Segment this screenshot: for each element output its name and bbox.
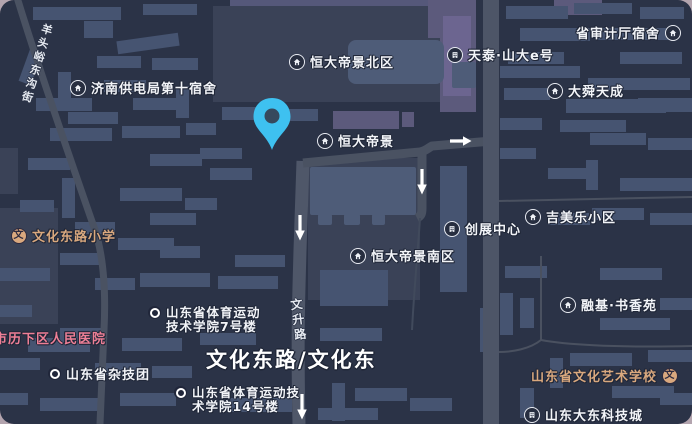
poi-sports-college-14[interactable]: 山东省体育运动技 术学院14号楼 (174, 386, 300, 414)
poi-label: 山东省文化艺术学校 (531, 366, 657, 385)
poi-label: 融基·书香苑 (581, 295, 657, 314)
poi-zaji-troupe[interactable]: 山东省杂技团 (48, 364, 150, 383)
house-icon (665, 25, 681, 41)
building-icon (524, 407, 540, 423)
poi-wenhua-primary[interactable]: 文 文化东路小学 (11, 226, 116, 245)
poi-dashun[interactable]: 大舜天成 (547, 81, 624, 100)
poi-label: 恒大帝景北区 (310, 52, 394, 71)
house-icon (317, 133, 333, 149)
house-icon (70, 80, 86, 96)
building-icon (447, 47, 463, 63)
building-icon (444, 221, 460, 237)
traffic-arrow-right (450, 136, 472, 146)
dot-icon (48, 367, 61, 380)
house-icon (547, 83, 563, 99)
map-canvas[interactable]: 羊头峪东沟街 文升路 文化东路/文化东 济南供电局第十宿舍 恒大帝景北区 天泰·… (0, 0, 692, 424)
poi-label: 济南供电局第十宿舍 (91, 78, 217, 97)
dot-icon (148, 306, 161, 319)
poi-label: 恒大帝景南区 (371, 246, 455, 265)
location-pin[interactable] (252, 97, 292, 151)
poi-label: 省审计厅宿舍 (576, 23, 660, 42)
poi-rongji[interactable]: 融基·书香苑 (560, 295, 657, 314)
poi-label-line1: 山东省体育运动技 (192, 386, 300, 400)
school-icon: 文 (11, 228, 27, 244)
poi-jimeile[interactable]: 吉美乐小区 (525, 207, 616, 226)
poi-art-school[interactable]: 山东省文化艺术学校 文 (531, 366, 678, 385)
poi-label-line2: 技术学院7号楼 (166, 320, 261, 334)
poi-label: 市历下区人民医院 (0, 328, 106, 347)
poi-label: 创展中心 (465, 219, 521, 238)
poi-label: 恒大帝景 (338, 131, 394, 150)
poi-label: 山东省杂技团 (66, 364, 150, 383)
poi-chuangzhan[interactable]: 创展中心 (444, 219, 521, 238)
poi-jinan-power-dorm[interactable]: 济南供电局第十宿舍 (70, 78, 217, 97)
traffic-arrow-down (295, 215, 305, 241)
dot-icon (174, 386, 187, 399)
poi-label: 大舜天成 (568, 81, 624, 100)
house-icon (560, 297, 576, 313)
poi-tiantai-shanda[interactable]: 天泰·山大e号 (447, 45, 554, 64)
poi-label: 文化东路小学 (32, 226, 116, 245)
poi-label: 天泰·山大e号 (468, 45, 554, 64)
school-icon: 文 (662, 368, 678, 384)
poi-sports-college-7[interactable]: 山东省体育运动 技术学院7号楼 (148, 306, 261, 334)
house-icon (350, 248, 366, 264)
poi-label-line2: 术学院14号楼 (192, 400, 300, 414)
poi-label-line1: 山东省体育运动 (166, 306, 261, 320)
poi-lixia-hospital[interactable]: 市历下区人民医院 (0, 328, 106, 347)
traffic-arrow-down (417, 169, 427, 195)
poi-dadong-tech[interactable]: 山东大东科技城 (524, 405, 643, 424)
poi-label: 吉美乐小区 (546, 207, 616, 226)
poi-hengda-south[interactable]: 恒大帝景南区 (350, 246, 455, 265)
poi-label: 山东大东科技城 (545, 405, 643, 424)
poi-hengda[interactable]: 恒大帝景 (317, 131, 394, 150)
house-icon (289, 54, 305, 70)
house-icon (525, 209, 541, 225)
poi-audit-dorm[interactable]: 省审计厅宿舍 (576, 23, 681, 42)
road-label-wenhua-east: 文化东路/文化东 (206, 344, 377, 374)
poi-hengda-north[interactable]: 恒大帝景北区 (289, 52, 394, 71)
